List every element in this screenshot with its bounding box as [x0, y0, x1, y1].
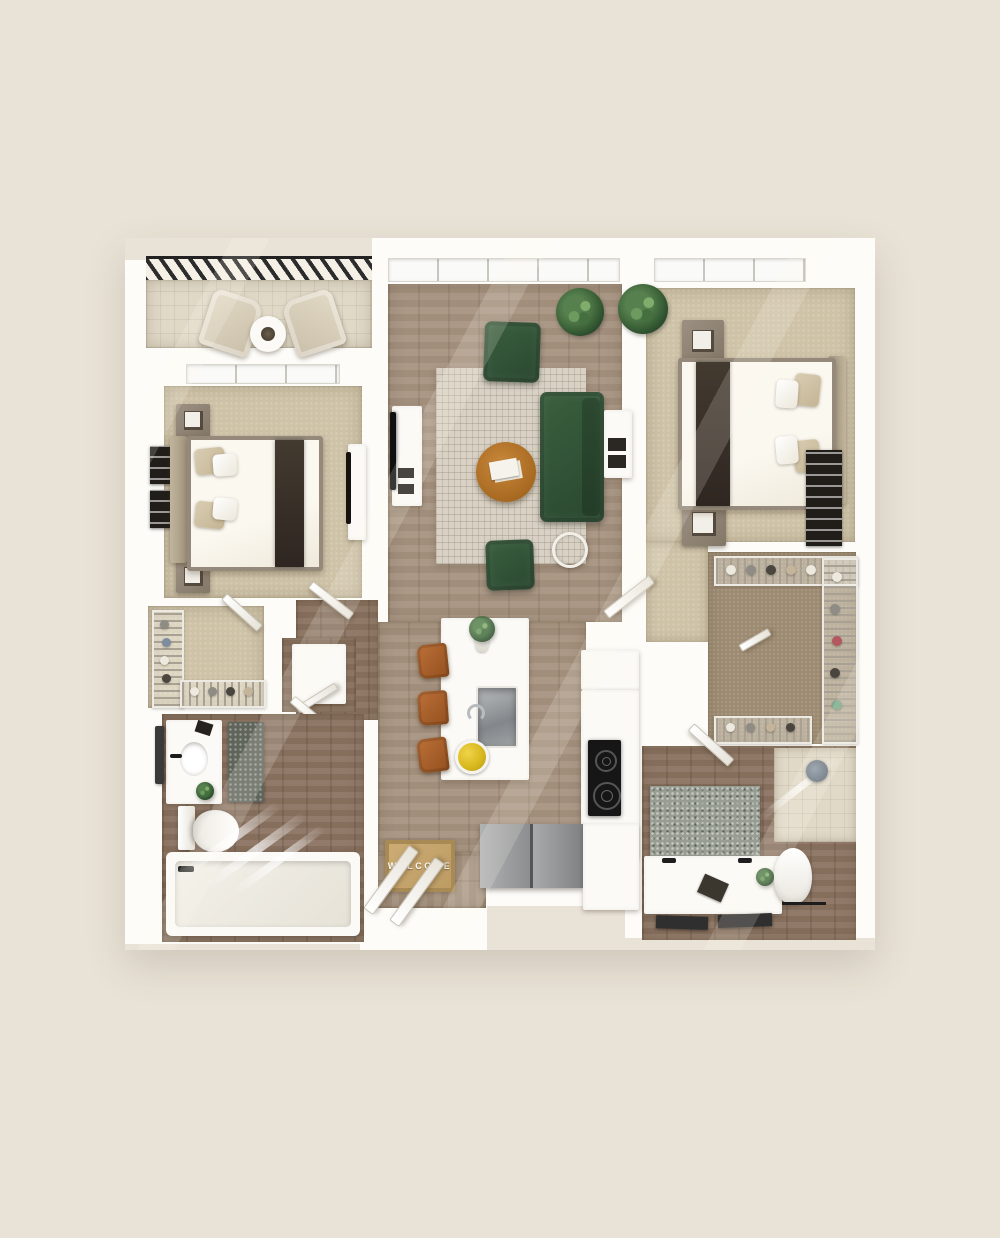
bathroom1-sink [180, 742, 208, 776]
closet2-clothes [766, 565, 776, 575]
bedroom2-desk [604, 410, 632, 478]
bathroom2-mirror-left [656, 915, 708, 930]
living-side-table [552, 532, 588, 568]
closet2-rack-right [822, 558, 858, 744]
bathroom1-vanity [166, 720, 222, 804]
living-media-console [392, 406, 422, 506]
vanity-faucet-right [738, 858, 752, 863]
bedroom2-pillow [775, 435, 799, 465]
background-notch-bottom-left [125, 944, 360, 950]
bathroom1-plant [196, 782, 214, 800]
bedroom1-nightstand-top [176, 404, 210, 437]
bathroom2-double-vanity [644, 856, 782, 914]
closet1-clothes [160, 656, 169, 665]
bathroom2-toilet [774, 848, 812, 904]
kitchen-corner-cabinet [581, 650, 639, 690]
closet1-clothes [162, 638, 171, 647]
bathtub-faucet [178, 866, 194, 872]
closet2-shoe-shelf [714, 716, 812, 744]
closet2-shoes [766, 723, 775, 732]
closet2-clothes [832, 636, 842, 646]
closet1-shoes [244, 687, 253, 696]
toilet-plumbing [782, 902, 826, 905]
showerhead [806, 760, 828, 782]
kitchen-cooktop [588, 740, 621, 816]
closet2-clothes [830, 668, 840, 678]
closet1-shoe-shelf [180, 680, 266, 708]
cooktop-burner [595, 750, 617, 772]
bedroom1-pillow [212, 453, 237, 477]
island-vase-flowers [469, 616, 495, 642]
desk-drawer [608, 438, 626, 451]
bedroom2-window [654, 258, 806, 282]
bedroom1-window [186, 364, 340, 384]
desk-drawer [608, 455, 626, 468]
fridge-door-split [530, 824, 533, 888]
balcony-table-bowl [261, 327, 275, 341]
bathroom1-toilet [193, 810, 239, 852]
closet2-clothes [832, 572, 842, 582]
bar-stool-3 [416, 736, 450, 773]
closet2-clothes [830, 604, 840, 614]
closet1-shoes [190, 687, 199, 696]
kitchen-island [441, 618, 529, 780]
kitchen-counter-corner [583, 824, 639, 910]
background-notch-bottom-center [487, 906, 625, 950]
closet2-shoes [786, 723, 795, 732]
bedroom1-bed-accent-runner [275, 440, 304, 567]
kitchen-refrigerator [480, 824, 583, 888]
lemon-bowl [455, 740, 489, 774]
closet2-shoes [746, 723, 755, 732]
bathroom1-bathtub [166, 852, 360, 936]
bedroom1-wall-art-bottom [150, 490, 172, 528]
bedroom1-pillow [212, 497, 238, 521]
closet2-clothes [806, 565, 816, 575]
bathroom1-faucet [170, 754, 182, 758]
living-tv [390, 412, 396, 490]
closet1-shoes [208, 687, 217, 696]
closet1-clothes [160, 620, 169, 629]
living-plant [556, 288, 604, 336]
bedroom2-pillow [775, 379, 799, 408]
sofa-back-cushion [582, 398, 600, 516]
vanity-faucet-left [662, 858, 676, 863]
bedroom1-headboard [170, 436, 187, 563]
closet2-clothes [832, 700, 842, 710]
closet2-clothes [786, 565, 796, 575]
bedroom2-floor-door-nook [646, 542, 708, 642]
bathroom1-rug [228, 722, 264, 802]
bar-stool-1 [416, 643, 449, 680]
closet1-shoes [226, 687, 235, 696]
floor-plan-page: { "scene": { "type": "3d-top-down-floor-… [0, 0, 1000, 1238]
bathroom2-mirror-right [718, 913, 772, 928]
closet1-clothes [162, 674, 171, 683]
bathroom1-towel [155, 726, 164, 784]
cooktop-burner [593, 782, 621, 810]
bedroom2-wall-art [806, 450, 842, 546]
living-armchair-bottom [485, 539, 535, 591]
bedroom2-nightstand-top [682, 320, 724, 362]
bedroom2-plant [618, 284, 668, 334]
closet2-clothes [746, 565, 756, 575]
living-armchair-top [483, 321, 541, 383]
console-speaker [398, 468, 414, 478]
vanity-tray [697, 874, 729, 903]
bar-stool-2 [417, 690, 449, 726]
bedroom1-wall-art-top [150, 446, 172, 484]
island-faucet [467, 704, 485, 722]
bedroom2-bed-accent-runner [696, 362, 730, 506]
living-room-window [388, 258, 620, 282]
closet2-clothes [726, 565, 736, 575]
bedroom1-bed [187, 436, 323, 571]
vanity-plant [756, 868, 774, 886]
bathroom1-tray [195, 720, 214, 736]
console-speaker [398, 484, 414, 494]
closet2-shoes [726, 723, 735, 732]
bathroom2-rug [650, 786, 760, 856]
living-sofa [540, 392, 604, 522]
bedroom1-tv [346, 452, 351, 524]
